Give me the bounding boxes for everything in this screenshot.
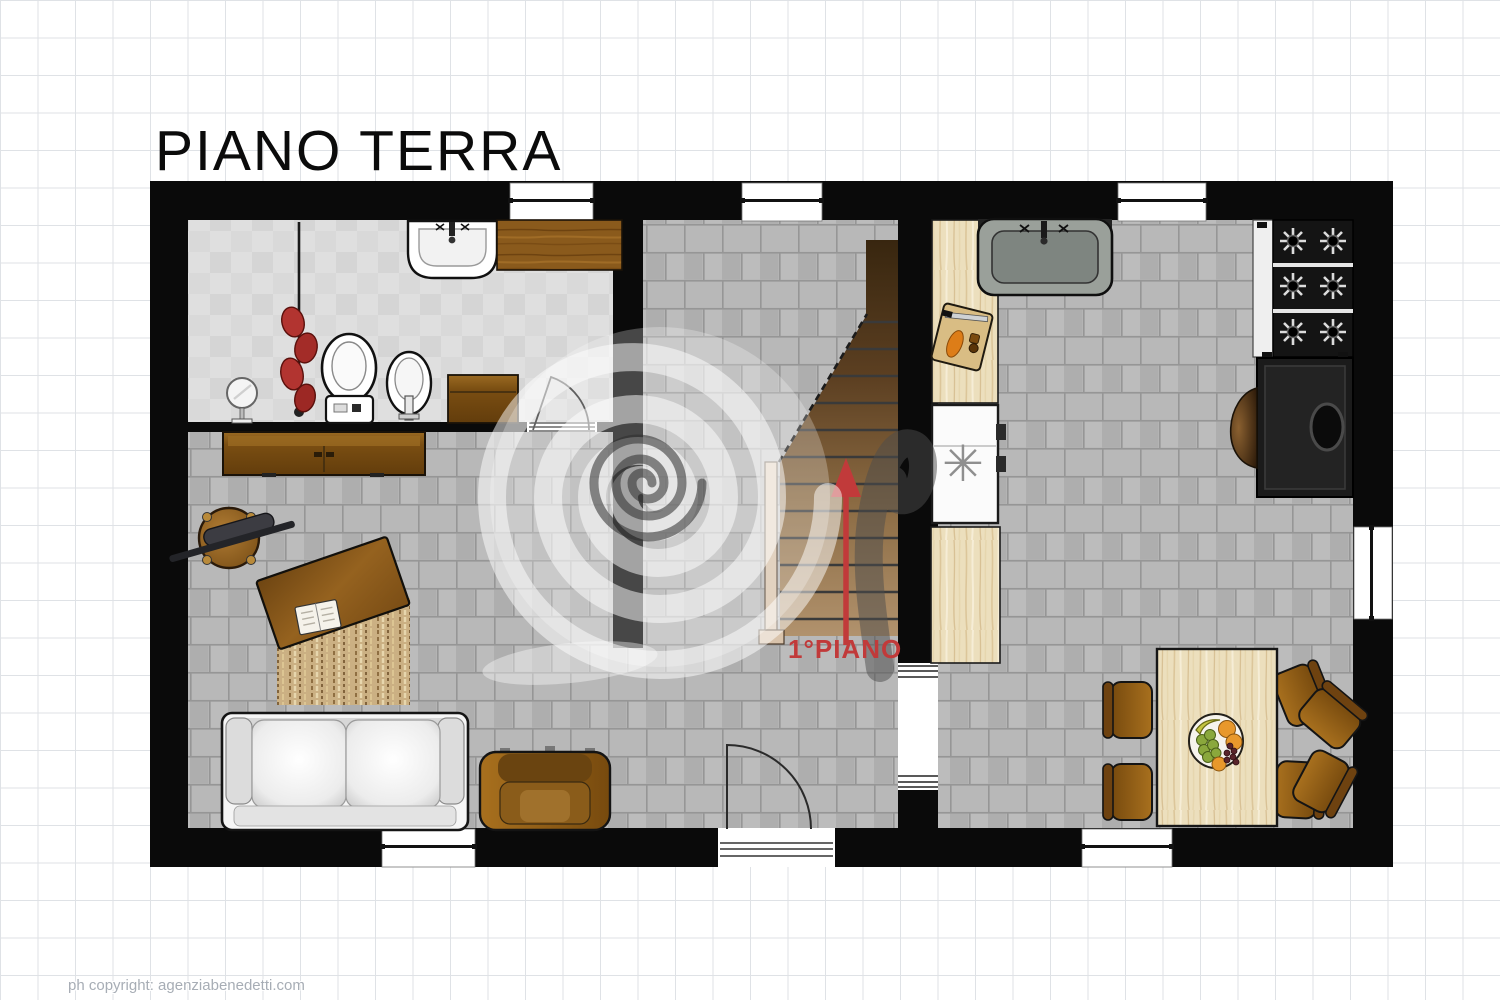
freezer-handle bbox=[996, 456, 1006, 472]
kitchen-counter-lower bbox=[931, 527, 1000, 663]
wall-left bbox=[150, 181, 188, 867]
dining-chair bbox=[1103, 764, 1152, 820]
floor-plan-canvas: PIANO TERRA 1°PIANO ✳ ph copyright: agen… bbox=[0, 0, 1500, 1000]
page-title: PIANO TERRA bbox=[155, 118, 562, 184]
freezer-handle bbox=[996, 424, 1006, 440]
sofa-armrest-left bbox=[226, 718, 252, 804]
window-stairwell bbox=[740, 183, 824, 221]
stove-vent-icon bbox=[1311, 404, 1343, 450]
window-living-bottom bbox=[380, 829, 477, 867]
freezer-defrost-icon: ✳ bbox=[930, 428, 996, 500]
window-right-wall bbox=[1354, 525, 1392, 621]
window-dining-bottom bbox=[1080, 829, 1174, 867]
wall-right bbox=[1353, 181, 1393, 867]
sideboard bbox=[223, 432, 425, 477]
wall-kitchen-lower bbox=[898, 790, 938, 828]
faucet-spout-icon bbox=[1041, 221, 1047, 238]
window-kitchen-top bbox=[1116, 183, 1208, 221]
sofa-armrest-right bbox=[438, 718, 464, 804]
sofa bbox=[222, 713, 468, 830]
gas-stove bbox=[1253, 220, 1353, 357]
kitchen-sink bbox=[978, 219, 1112, 295]
faucet-spout-icon bbox=[449, 222, 455, 236]
sofa-cushion bbox=[252, 720, 346, 808]
kitchen-passage bbox=[898, 663, 938, 790]
armchair bbox=[480, 746, 610, 830]
window-bathroom bbox=[508, 183, 595, 221]
toilet bbox=[322, 334, 376, 423]
bathroom-counter bbox=[497, 220, 622, 270]
dining-chair bbox=[1103, 682, 1152, 738]
stairs-destination-label: 1°PIANO bbox=[788, 634, 902, 665]
bathroom-sink bbox=[408, 221, 497, 278]
sofa-cushion bbox=[346, 720, 440, 808]
copyright-watermark: ph copyright: agenziabenedetti.com bbox=[68, 977, 305, 994]
